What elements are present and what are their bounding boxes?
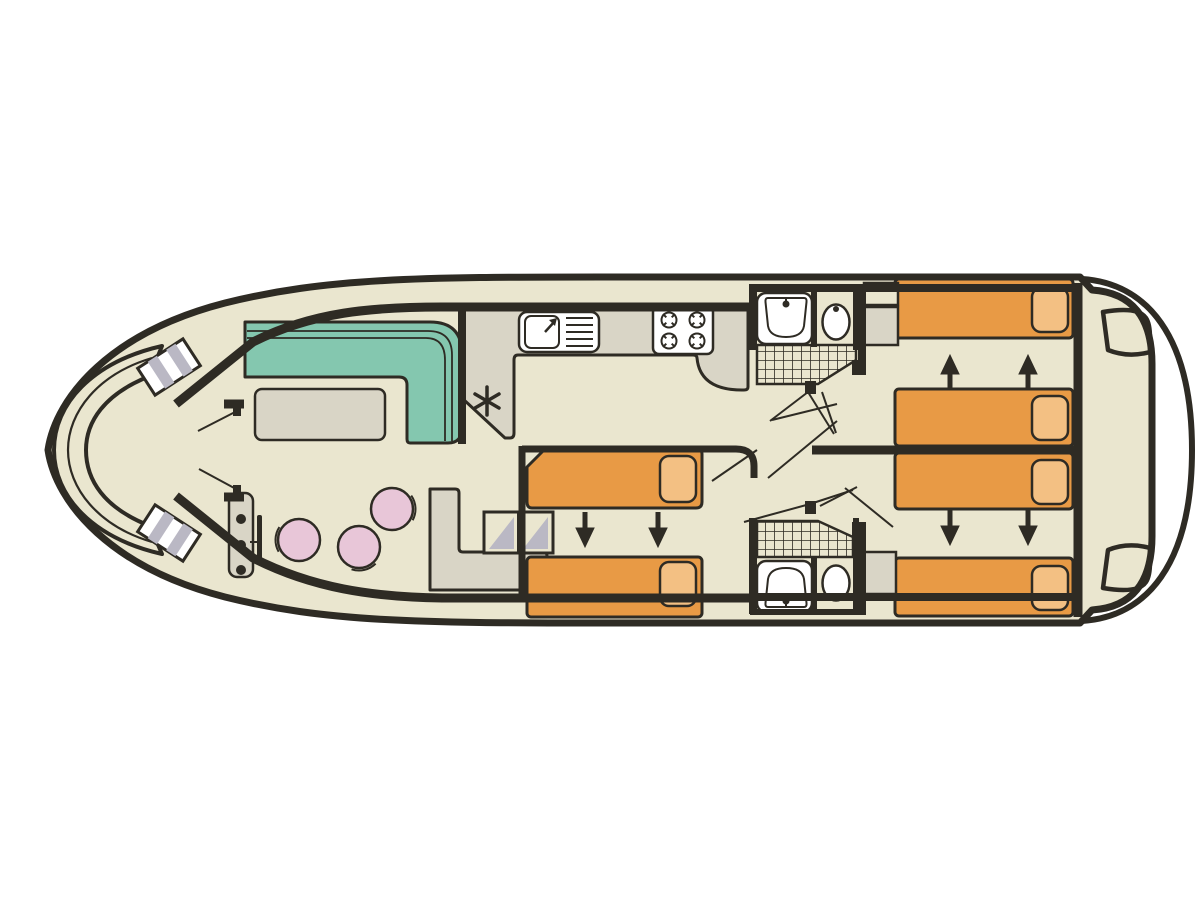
bow-door-hinge xyxy=(233,404,241,416)
galley-sink xyxy=(519,312,599,352)
bow-door-hinge xyxy=(233,485,241,497)
pillow xyxy=(660,456,696,502)
helm-console xyxy=(229,493,253,577)
pillow xyxy=(1032,288,1068,332)
saloon-table xyxy=(255,389,385,440)
stool xyxy=(371,488,413,530)
pillow xyxy=(1032,460,1068,504)
galley-hob xyxy=(653,306,713,354)
floor-plan-svg xyxy=(0,0,1200,900)
washbasin-tap xyxy=(783,301,790,308)
boat-floor-plan: boat floor plan diagram xyxy=(0,0,1200,900)
stool xyxy=(338,526,380,568)
wardrobe xyxy=(864,307,898,345)
toilet-flush xyxy=(833,306,839,312)
pillow xyxy=(1032,396,1068,440)
wardrobe xyxy=(862,552,896,594)
stool xyxy=(278,519,320,561)
pillow xyxy=(1032,566,1068,610)
